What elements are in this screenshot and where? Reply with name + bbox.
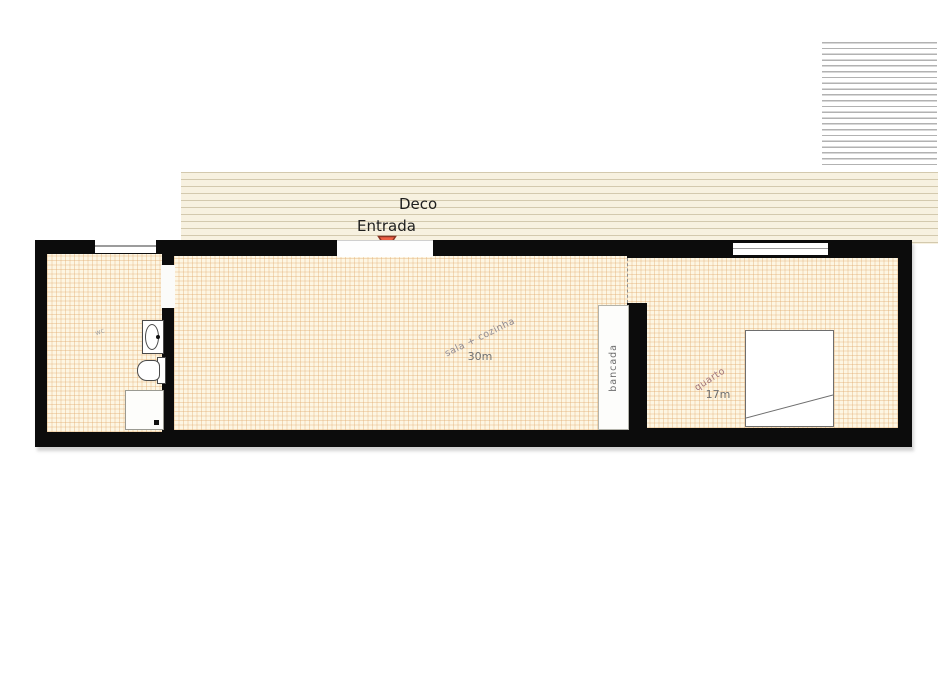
living-room-area: 30m	[455, 350, 505, 363]
bedroom-divider-wall	[627, 303, 647, 432]
bedroom-window	[733, 243, 828, 255]
entrance-opening	[337, 240, 433, 257]
floor-plan-canvas: Deco Entrada bancada	[0, 0, 940, 685]
sink-tap-icon	[156, 335, 160, 339]
toilet-fixture	[137, 360, 160, 381]
bathroom-door-opening	[161, 265, 175, 308]
building-outline: bancada sala + cozinha 30m quarto 17m wc	[35, 240, 912, 447]
living-room-floor	[174, 256, 627, 430]
deck-area	[181, 172, 938, 244]
counter-bancada: bancada	[598, 305, 629, 430]
shower-drain-icon	[154, 420, 159, 425]
bathroom-window	[95, 240, 156, 253]
bedroom-passage-line	[627, 258, 628, 303]
sink-fixture	[142, 320, 164, 354]
bed	[745, 330, 834, 427]
counter-label: bancada	[608, 344, 619, 392]
deck-label: Deco	[399, 195, 437, 213]
entrance-label: Entrada	[357, 217, 416, 235]
roof-hatch-area	[822, 42, 937, 168]
shower-tray	[125, 390, 164, 430]
bedroom-area: 17m	[693, 388, 743, 401]
